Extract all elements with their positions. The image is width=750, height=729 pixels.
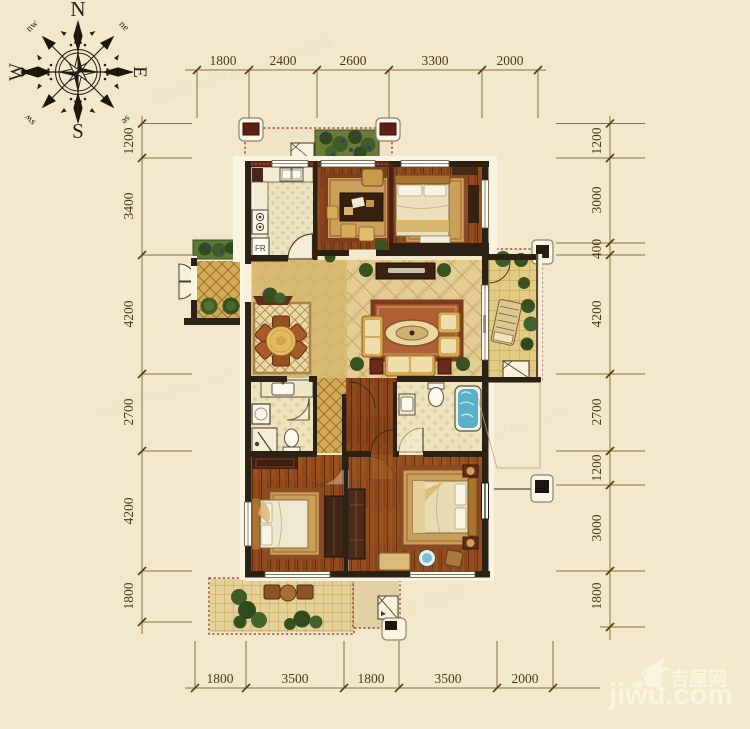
svg-text:3300: 3300 [422,53,449,68]
svg-text:1200: 1200 [589,454,604,481]
svg-text:2700: 2700 [589,398,604,425]
svg-text:2000: 2000 [512,671,539,686]
svg-text:E: E [129,66,150,78]
svg-text:2000: 2000 [497,53,524,68]
svg-text:FR: FR [255,244,266,253]
svg-text:1800: 1800 [358,671,385,686]
svg-text:4200: 4200 [121,497,136,524]
svg-text:2600: 2600 [340,53,367,68]
svg-text:N: N [70,0,85,21]
svg-text:1800: 1800 [121,582,136,609]
svg-text:1800: 1800 [207,671,234,686]
svg-text:jiwu.com: jiwu.com [608,679,733,711]
svg-text:W: W [6,63,27,81]
svg-text:4200: 4200 [121,300,136,327]
svg-text:3000: 3000 [589,186,604,213]
svg-text:3500: 3500 [435,671,462,686]
svg-text:400: 400 [589,239,604,260]
svg-text:3500: 3500 [282,671,309,686]
svg-text:3000: 3000 [589,514,604,541]
svg-text:4200: 4200 [589,300,604,327]
svg-text:1200: 1200 [589,127,604,154]
svg-text:S: S [72,119,84,143]
svg-text:1800: 1800 [589,582,604,609]
svg-text:3400: 3400 [121,192,136,219]
svg-text:1200: 1200 [121,127,136,154]
